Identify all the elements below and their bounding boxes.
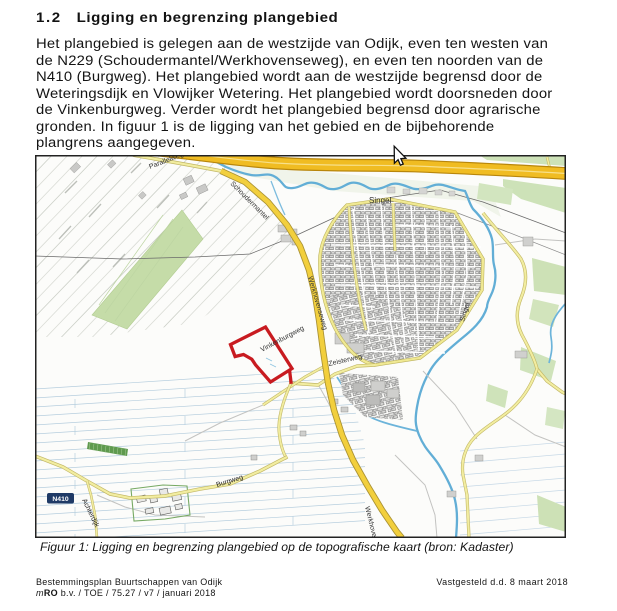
svg-text:N410: N410 [52, 496, 68, 503]
svg-text:Singel: Singel [369, 196, 391, 205]
